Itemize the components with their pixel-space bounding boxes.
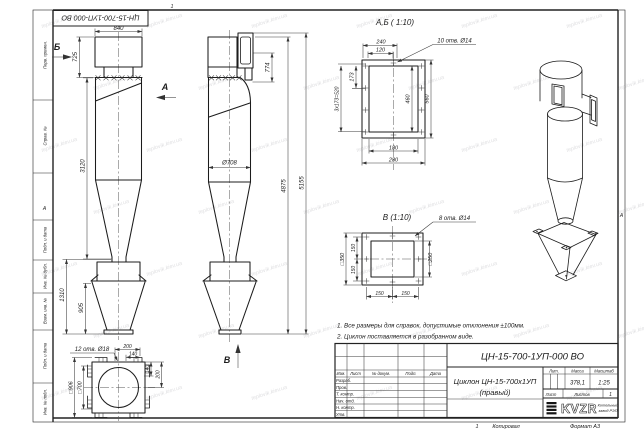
- dim-560: 560: [425, 93, 431, 103]
- detail-bottom: 200 140 140 200 □906 □700 12 отв. Ø18: [68, 344, 164, 421]
- watermark-text: teplovik.kiev.ua: [303, 323, 340, 340]
- dim-173: 173: [350, 71, 356, 81]
- detail-ab: А,Б ( 1:10) 240 120 173 3x173=520 460 56…: [334, 18, 476, 170]
- margin-label: Подп. и дата: [43, 342, 48, 369]
- detail-ab-callout: 10 отв. Ø14: [437, 39, 472, 45]
- dim-3120: 3120: [80, 159, 86, 173]
- top-designation-text: ЦН-15-700-1УП-000 ВО: [61, 13, 139, 22]
- dim-180: 180: [389, 146, 399, 152]
- margin-label: Подп. и дата: [43, 226, 48, 253]
- arrow-v: [235, 344, 240, 353]
- watermark-text: teplovik.kiev.ua: [251, 13, 288, 30]
- view-label-b: Б: [54, 42, 61, 52]
- watermark-text: teplovik.kiev.ua: [513, 199, 550, 216]
- row-prov: Пров.: [336, 385, 347, 390]
- dim-840: 840: [113, 26, 124, 32]
- row-nkontr: Н. контр.: [336, 405, 355, 410]
- watermark-text: teplovik.kiev.ua: [566, 13, 603, 30]
- row-tkontr: Т. контр.: [336, 392, 354, 397]
- zone-letter-right: А: [619, 213, 624, 219]
- dim-1310: 1310: [60, 288, 66, 302]
- row-razrab: Разраб.: [336, 378, 351, 383]
- watermark-text: teplovik.kiev.ua: [251, 137, 288, 154]
- watermark-text: teplovik.kiev.ua: [356, 137, 393, 154]
- dim-sq250: □250: [428, 252, 434, 265]
- dim-sq906: □906: [68, 380, 74, 393]
- company-name-line1: Котельный: [598, 404, 620, 408]
- view-label-a: А: [161, 82, 169, 92]
- copy-number: 1: [475, 424, 478, 430]
- listov-value: 1: [609, 392, 612, 398]
- note-line-1: 1. Все размеры для справок, допустимые о…: [337, 322, 525, 330]
- watermark-text: teplovik.kiev.ua: [356, 385, 393, 402]
- dim-200t: 200: [122, 344, 132, 350]
- dim-150: 150: [351, 244, 357, 253]
- col-data: Дата: [429, 371, 442, 376]
- dim-280: 280: [388, 158, 399, 164]
- detail-v-title: В (1:10): [383, 213, 412, 222]
- dim-sq350: □350: [340, 252, 346, 265]
- watermark-text: teplovik.kiev.ua: [303, 199, 340, 216]
- watermark-text: teplovik.kiev.ua: [566, 261, 603, 278]
- dim-725: 725: [73, 51, 79, 62]
- margin-label: Инв. № подл.: [43, 389, 48, 415]
- watermark-text: teplovik.kiev.ua: [356, 261, 393, 278]
- kvzr-logo-icon: [547, 402, 557, 414]
- mass-value: 378,1: [570, 381, 585, 387]
- copied-label: Копировал: [492, 424, 519, 430]
- dim-150: 150: [375, 291, 384, 297]
- dim-d708: Ø708: [221, 161, 237, 167]
- dim-140r: 140: [145, 365, 151, 374]
- scale-value: 1:25: [598, 381, 610, 387]
- arrow-a: [156, 95, 165, 100]
- margin-label: Справ. №: [43, 126, 48, 145]
- document-name-line2: (правый): [479, 388, 511, 397]
- company-name-line2: завод РЭП: [598, 409, 618, 413]
- dim-sq700: □700: [77, 380, 83, 393]
- dim-150: 150: [401, 291, 410, 297]
- col-izm: Изм.: [337, 371, 346, 376]
- row-utv: Утв.: [336, 412, 346, 417]
- dim-4875: 4875: [281, 179, 287, 193]
- watermark-text: teplovik.kiev.ua: [408, 75, 445, 92]
- watermark-text: teplovik.kiev.ua: [146, 261, 183, 278]
- scale-label: Масштаб: [594, 369, 614, 374]
- margin-label: Взам. инв. №: [43, 298, 48, 324]
- row-nachotd: Нач. отд.: [336, 399, 355, 404]
- dim-120: 120: [376, 48, 386, 54]
- dim-240: 240: [375, 40, 386, 46]
- view-front-left: 840 725 3120 1310 905 Б А: [52, 26, 176, 340]
- dim-5155: 5155: [299, 176, 305, 190]
- zone-letter-left: А: [42, 206, 47, 212]
- title-block: Изм. Лист № докум. Подп. Дата Разраб. Пр…: [335, 344, 619, 418]
- detail-v: В (1:10) □350 150 150 □250 150 150 8 отв…: [340, 213, 476, 303]
- top-designation-stamp: ЦН-15-700-1УП-000 ВО: [53, 11, 148, 27]
- logo-text: KVZR: [561, 402, 597, 416]
- watermark-text: teplovik.kiev.ua: [408, 199, 445, 216]
- document-name-line1: Циклон ЦН-15-700х1УП: [454, 377, 537, 386]
- zone-number-top: 1: [171, 4, 174, 10]
- dim-520: 3x173=520: [334, 86, 340, 111]
- margin-label: Инв. № дубл.: [43, 263, 48, 289]
- dim-140t: 140: [129, 351, 138, 357]
- engineering-drawing-sheet: teplovik.kiev.uateplovik.kiev.uateplovik…: [0, 0, 644, 430]
- isometric-view: [533, 61, 598, 281]
- watermark-text: teplovik.kiev.ua: [146, 137, 183, 154]
- margin-label: Перв. примен.: [43, 41, 48, 69]
- note-line-2: 2. Циклон поставляется в разобранном вид…: [336, 333, 474, 341]
- watermark-text: teplovik.kiev.ua: [566, 137, 603, 154]
- detail-bottom-callout: 12 отв. Ø18: [75, 347, 110, 353]
- dim-774: 774: [265, 62, 271, 73]
- lit-label: Лит.: [548, 369, 559, 374]
- dim-150: 150: [351, 266, 357, 275]
- watermark-text: teplovik.kiev.ua: [461, 13, 498, 30]
- format-label: Формат А3: [570, 424, 601, 430]
- watermark-text: teplovik.kiev.ua: [146, 13, 183, 30]
- list-label: Лист: [545, 392, 557, 397]
- watermark-text: teplovik.kiev.ua: [461, 137, 498, 154]
- dim-200r: 200: [155, 370, 161, 380]
- drawing-frame: Перв. примен. Справ. № Подп. и дата Инв.…: [33, 4, 625, 430]
- document-designation: ЦН-15-700-1УП-000 ВО: [481, 352, 585, 363]
- view-label-v: В: [224, 355, 231, 365]
- detail-ab-title: А,Б ( 1:10): [375, 18, 414, 27]
- watermark-text: teplovik.kiev.ua: [513, 75, 550, 92]
- watermark-text: teplovik.kiev.ua: [618, 75, 644, 92]
- watermark-text: teplovik.kiev.ua: [93, 199, 130, 216]
- col-podp: Подп.: [405, 371, 416, 376]
- watermark-text: teplovik.kiev.ua: [251, 385, 288, 402]
- mass-label: Масса: [571, 369, 584, 374]
- dim-460: 460: [406, 93, 412, 103]
- detail-v-callout: 8 отв. Ø14: [439, 216, 471, 222]
- watermark-text: teplovik.kiev.ua: [93, 323, 130, 340]
- arrow-b: [63, 54, 72, 59]
- watermark-text: teplovik.kiev.ua: [618, 323, 644, 340]
- col-list: Лист: [349, 371, 361, 376]
- listov-label: Листов: [573, 392, 590, 397]
- watermark-text: teplovik.kiev.ua: [461, 261, 498, 278]
- watermark-text: teplovik.kiev.ua: [251, 261, 288, 278]
- dim-905: 905: [79, 302, 85, 313]
- col-doc: № докум.: [372, 371, 390, 376]
